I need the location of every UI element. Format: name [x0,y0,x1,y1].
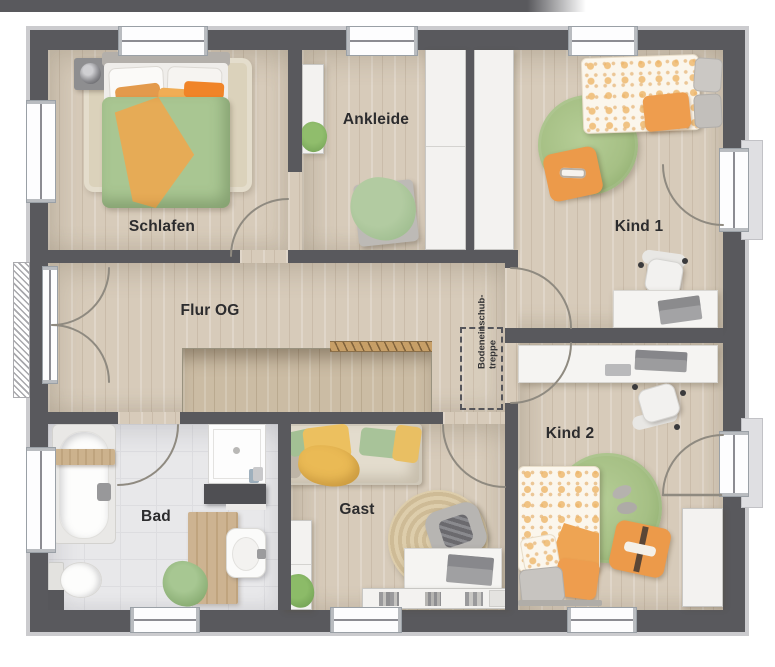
guest-bed [282,424,422,485]
wardrobe-seam [426,146,465,147]
door-gap-gast [443,412,505,424]
window-schlafen-top [118,26,208,56]
room-label-ankleide: Ankleide [343,111,409,129]
toilet-bowl [60,562,102,598]
window-schlafen-left [26,100,56,203]
pillow-yellow [392,424,423,463]
wall-bad-gast-north [180,412,443,424]
stair-treads [330,341,432,352]
room-label-flur: Flur OG [180,302,239,320]
caster [674,424,680,430]
pillow-gray [693,93,723,128]
shampoo-bottles [253,467,263,481]
wall-bad-gast [278,412,291,610]
duvet-green [102,97,230,208]
books [465,592,483,606]
laptop [446,554,494,586]
basin-bowl [232,537,260,571]
caster [680,390,686,396]
floor-drain-box [48,590,64,610]
attic-ladder-label: Bodeneinschub- treppe [476,314,487,424]
window-kind1-right [719,148,749,232]
desk-kind1 [613,290,718,328]
window-kind2-bottom [567,607,637,633]
room-label-schlafen: Schlafen [129,218,195,236]
door-gap-kind1 [505,268,518,328]
wardrobe-ankleide [425,50,466,250]
door-gap-kind2 [505,343,518,403]
toy-doll [560,168,586,179]
desk-chair-kind2 [630,382,688,430]
wardrobe-kind1 [474,50,514,250]
attic-ladder-box: Bodeneinschub- treppe [460,327,503,410]
room-label-gast: Gast [339,501,374,519]
wall-stub-kind1-door [505,250,518,268]
room-label-bad: Bad [141,508,171,526]
caster [632,384,638,390]
window-bad-bottom [130,607,200,633]
pillow-gray [693,57,723,93]
double-bed [102,52,230,208]
books [379,592,399,606]
floor-plan: Schlafen Ankleide Kind 1 Flur OG Bad Gas… [0,0,775,667]
wall-ankleide-kind1 [466,50,474,250]
caster [682,258,688,264]
single-bed-kind1 [582,54,723,134]
storage-box [489,590,506,607]
monitor [635,350,688,373]
window-gast-bottom [330,607,402,633]
door-gap-schlafen [240,250,288,263]
wall-kind1-kind2 [505,328,723,343]
room-label-kind2: Kind 2 [546,425,595,443]
stairwell-opening [182,348,432,412]
balcony-door-frame [42,266,58,384]
wall-kind2-west [505,403,518,610]
window-bad-left [26,447,56,553]
wall-ankleide-south [288,250,518,263]
duvet-orange-band [102,97,230,208]
bathroom-counter [204,484,266,504]
caster [638,262,644,268]
wall-bad-north-left [48,412,118,424]
sideboard [362,588,508,609]
window-kind1-top [568,26,638,56]
armchair-cushion [437,513,474,549]
books [425,592,441,606]
image-top-border [0,0,586,12]
cushion-orange [642,92,692,133]
desk-gast [404,548,502,590]
bath-caddy [55,449,115,465]
attic-ladder-line1: Bodeneinschub- [476,294,487,368]
attic-ladder-line2: treppe [487,339,498,368]
shower [208,424,266,484]
wall-schlafen-ankleide [288,50,302,172]
room-label-kind1: Kind 1 [615,218,664,236]
bedside-lamp [80,63,101,84]
footboard [518,600,602,606]
washbasin [226,528,266,578]
wardrobe-kind2 [682,508,723,607]
shower-drain [233,447,240,454]
door-gap-bad [118,412,180,424]
window-door-kind2-right [719,431,749,497]
wall-schlafen-south [48,250,240,263]
window-ankleide-top [346,26,418,56]
desk-kind2 [518,345,718,383]
bathtub [52,424,116,544]
keyboard [605,364,631,376]
juliet-balcony-grille [13,262,30,398]
bath-faucet [97,483,111,501]
counter-shelf [226,504,266,510]
basin-tap [257,549,266,559]
single-bed-kind2 [518,466,602,606]
laptop [658,295,703,325]
